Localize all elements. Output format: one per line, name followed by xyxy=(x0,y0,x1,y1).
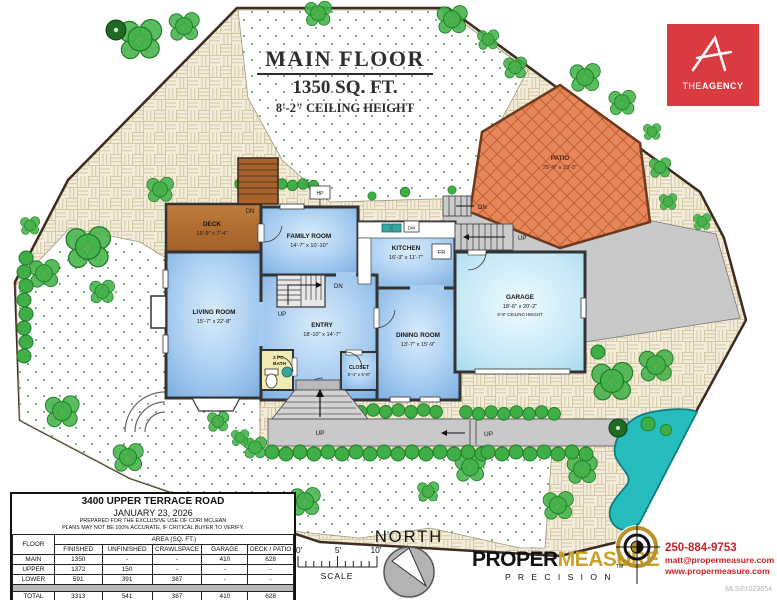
agency-name-agency: AGENCY xyxy=(702,81,744,91)
cell: 410 xyxy=(202,555,248,565)
sink-icon xyxy=(392,224,401,232)
row-lower-label: LOWER xyxy=(13,575,55,585)
table-row: LOWER 591 391 387 - - xyxy=(13,575,294,585)
sink-icon xyxy=(382,224,391,232)
scale-label: SCALE xyxy=(321,571,354,581)
cell: - xyxy=(202,565,248,575)
deck-stairs xyxy=(238,158,278,204)
plan-date: JANUARY 23, 2026 xyxy=(12,507,294,518)
cell: - xyxy=(202,575,248,585)
agency-name: THEAGENCY xyxy=(667,81,759,91)
title-block: MAIN FLOOR 1350 SQ. FT. 8'-2" CEILING HE… xyxy=(233,46,457,116)
patio-dims: 25'-9" x 23'-5" xyxy=(543,165,577,171)
col-deck-patio: DECK / PATIO xyxy=(248,545,294,555)
ceiling-height: 8'-2" CEILING HEIGHT xyxy=(233,101,457,116)
svg-text:PROPERMEASURE: PROPERMEASURE xyxy=(472,548,660,571)
col-floor: FLOOR xyxy=(13,535,55,555)
property-address: 3400 UPPER TERRACE ROAD xyxy=(12,494,294,507)
cell: - xyxy=(152,555,202,565)
table-row: MAIN 1350 - - 410 628 xyxy=(13,555,294,565)
brand-proper: PROPER xyxy=(472,548,558,571)
patio-steps xyxy=(443,196,474,216)
kitchen-label: KITCHEN xyxy=(392,245,421,252)
agency-monogram-icon xyxy=(667,24,759,80)
scale-five: 5' xyxy=(335,545,342,555)
col-crawlspace: CRAWLSPACE xyxy=(152,545,202,555)
deck-dims: 15'-9" x 7'-4" xyxy=(196,231,227,237)
row-main-label: MAIN xyxy=(13,555,55,565)
garage-dims: 18'-6" x 20'-2" xyxy=(503,304,537,310)
scale-ten: 10' xyxy=(370,545,381,555)
floor-area: 1350 SQ. FT. xyxy=(233,77,457,99)
bath-label-2: BATH xyxy=(273,361,287,367)
row-total-label: TOTAL xyxy=(13,592,55,600)
dw-label: DW xyxy=(408,226,416,231)
contact-website[interactable]: www.propermeasure.com xyxy=(664,566,770,576)
brand-measure: MEASURE xyxy=(558,548,660,571)
north-compass: NORTH xyxy=(375,528,443,597)
entry-label: ENTRY xyxy=(311,322,333,329)
dining-dims: 13'-7" x 15'-9" xyxy=(401,342,435,348)
cell: 591 xyxy=(54,575,102,585)
contact-email[interactable]: matt@propermeasure.com xyxy=(665,555,775,565)
garage-ceiling: 8'-8" CEILING HEIGHT xyxy=(497,312,543,317)
cell: 1350 xyxy=(54,555,102,565)
north-label: NORTH xyxy=(375,528,443,546)
area-table: 3400 UPPER TERRACE ROAD JANUARY 23, 2026… xyxy=(10,492,296,600)
garage-up-label: UP xyxy=(518,236,526,242)
cell: - xyxy=(248,565,294,575)
cell: 541 xyxy=(102,592,152,600)
dining-label: DINING ROOM xyxy=(396,332,440,339)
mls-number: MLS®1023654 xyxy=(725,585,772,593)
contact-phone: 250-884-9753 xyxy=(665,542,737,554)
agency-logo: THEAGENCY xyxy=(667,24,759,106)
walk-up-label-2: UP xyxy=(484,431,493,438)
garage-label: GARAGE xyxy=(506,294,535,301)
bath-label-1: 2 PC xyxy=(273,355,284,361)
stairs-dn-label: DN xyxy=(334,284,343,290)
living-label: LIVING ROOM xyxy=(193,309,236,316)
contact-info: 250-884-9753 matt@propermeasure.com www.… xyxy=(664,542,775,576)
family-dims: 14'-7" x 10'-10" xyxy=(290,243,328,249)
kitchen-dims: 16'-3" x 11'-7" xyxy=(389,255,423,261)
cell: 150 xyxy=(102,565,152,575)
agency-name-the: THE xyxy=(682,81,702,91)
walk-up-label-1: UP xyxy=(315,430,324,437)
stairs-up-label: UP xyxy=(278,312,286,318)
toilet-icon xyxy=(266,374,277,388)
table-note-2: PLANS MAY NOT BE 100% ACCURATE, IF CRITI… xyxy=(12,525,294,532)
bath-sink-icon xyxy=(282,367,292,377)
patio-dn-label: DN xyxy=(478,205,487,211)
table-row-total: TOTAL 3313 541 387 410 628 xyxy=(13,592,294,600)
col-garage: GARAGE xyxy=(202,545,248,555)
cell: - xyxy=(152,565,202,575)
deck-dn-label: DN xyxy=(246,209,255,215)
cell: - xyxy=(248,575,294,585)
deck-label: DECK xyxy=(203,221,221,228)
row-upper-label: UPPER xyxy=(13,565,55,575)
room-closet xyxy=(341,352,377,390)
cell: - xyxy=(102,555,152,565)
patio-label: PATIO xyxy=(551,155,570,162)
area-grid: FLOOR AREA (SQ. FT.) FINISHED UNFINISHED… xyxy=(12,534,294,600)
closet-label: CLOSET xyxy=(349,365,369,371)
cell: 410 xyxy=(202,592,248,600)
spacer-row xyxy=(13,585,294,592)
scale-zero: 0' xyxy=(296,545,303,555)
floor-plan-page: DECK 15'-9" x 7'-4" FAMILY ROOM 14'-7" x… xyxy=(0,0,777,600)
table-note-1: PREPARED FOR THE EXCLUSIVE USE OF CORI M… xyxy=(12,518,294,525)
closet-dims: 5'-4" x 5'-8" xyxy=(348,372,371,377)
cell: 3313 xyxy=(54,592,102,600)
table-row: UPPER 1372 150 - - - xyxy=(13,565,294,575)
cell: 628 xyxy=(248,592,294,600)
page-title: MAIN FLOOR xyxy=(257,46,433,75)
family-label: FAMILY ROOM xyxy=(287,233,331,240)
cell: 387 xyxy=(152,575,202,585)
cell: 387 xyxy=(152,592,202,600)
cell: 391 xyxy=(102,575,152,585)
brand-tm: TM xyxy=(616,564,623,570)
cell: 628 xyxy=(248,555,294,565)
fr-label: FR xyxy=(438,250,445,256)
interior-stairs xyxy=(277,275,325,307)
area-header: AREA (SQ. FT.) xyxy=(54,535,293,545)
cell: 1372 xyxy=(54,565,102,575)
brand-precision: P R E C I S I O N xyxy=(505,572,613,582)
garage-stairs xyxy=(455,224,513,250)
col-unfinished: UNFINISHED xyxy=(102,545,152,555)
hp-label: HP xyxy=(317,191,325,197)
room-family xyxy=(261,207,358,275)
living-dims: 15'-7" x 22'-8" xyxy=(197,319,231,325)
col-finished: FINISHED xyxy=(54,545,102,555)
entry-dims: 18'-10" x 14'-7" xyxy=(303,332,341,338)
room-living xyxy=(166,252,261,398)
scale-bar: 0' 5' 10' SCALE xyxy=(296,545,382,581)
